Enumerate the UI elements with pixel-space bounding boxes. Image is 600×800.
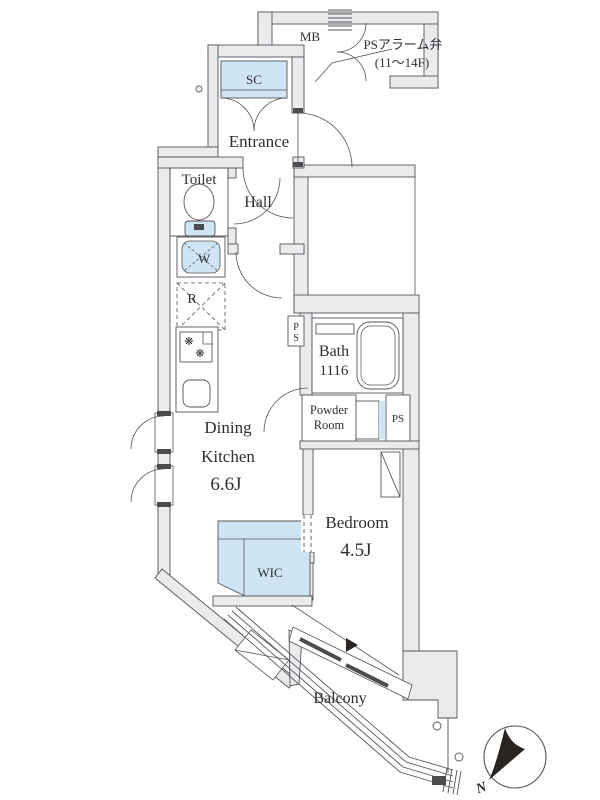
dk-door-arc: [236, 252, 282, 298]
svg-text:❋: ❋: [195, 348, 204, 360]
label-bath: Bath: [319, 343, 349, 360]
toilet-lid-detail: [194, 224, 204, 230]
label-powder-1: Powder: [310, 403, 349, 417]
wall-toilet-hall-2: [228, 228, 236, 244]
vent-circle-top: [196, 86, 202, 92]
wall-hall-dk-1: [228, 244, 238, 254]
label-bedroom-size: 4.5J: [340, 540, 371, 561]
balcony-sliding-door: [289, 627, 412, 699]
label-washer: W: [198, 251, 211, 266]
label-mb: MB: [300, 29, 321, 44]
wall-right: [403, 313, 419, 651]
bathtub-inner: [361, 326, 395, 385]
wall-hall-dk-2: [280, 244, 304, 254]
label-bath-size: 1116: [320, 363, 349, 379]
vent-circle-right-2: [455, 753, 463, 761]
wall-wic-bottom: [213, 596, 312, 606]
wall-void-left: [294, 165, 308, 313]
compass: N: [473, 726, 546, 797]
label-balcony: Balcony: [313, 690, 366, 707]
wall-left-step: [158, 147, 218, 157]
label-alarm-floors: (11〜14F): [375, 55, 429, 70]
svg-text:❋: ❋: [184, 336, 193, 348]
wall-left-upper: [208, 45, 218, 147]
washbasin: [356, 401, 379, 439]
wall-void-bottom: [294, 295, 419, 313]
window-1: [131, 411, 173, 454]
wall-hall-top-left: [158, 157, 243, 168]
door-direction-marker: [346, 638, 358, 652]
bedroom-sliding-doorway: [301, 515, 315, 552]
label-ps-right: PS: [392, 413, 404, 425]
kitchen-counter: [176, 327, 218, 412]
label-dining: Dining: [204, 418, 252, 437]
label-wic: WIC: [257, 565, 282, 580]
entrance-door-jamb-top: [293, 108, 303, 113]
outside-void: [308, 177, 415, 295]
sc-door-arc-right: [254, 98, 287, 131]
floor-plan: ❋❋: [0, 0, 600, 800]
label-hall: Hall: [244, 194, 272, 211]
wall-mb-bottom: [390, 76, 438, 88]
wall-toilet-hall-1: [228, 168, 236, 178]
wall-entrance-right: [292, 57, 304, 113]
compass-north-label: N: [473, 779, 489, 797]
sc-door-arc-left: [221, 98, 254, 131]
bedroom-chute: [381, 452, 400, 497]
label-sc: SC: [246, 72, 262, 87]
kitchen-sink: [183, 380, 210, 407]
window-2: [131, 464, 173, 507]
label-entrance: Entrance: [229, 132, 289, 151]
label-bedroom: Bedroom: [325, 513, 388, 532]
refrigerator-space: [177, 283, 225, 330]
label-dk-size: 6.6J: [210, 474, 241, 495]
wall-bedroom-top: [300, 441, 419, 449]
bath-counter: [316, 324, 354, 334]
walk-in-closet: [218, 521, 310, 596]
wall-void-top: [294, 165, 415, 177]
vent-circle-right-1: [433, 722, 441, 730]
toilet-fixture: [184, 184, 215, 236]
wall-sc-top: [208, 45, 304, 57]
label-powder-2: Room: [314, 418, 345, 432]
washbasin-counter-strip: [379, 401, 385, 439]
railing-detail-block: [432, 776, 446, 785]
floor-plan-canvas: ❋❋: [0, 0, 600, 800]
label-kitchen: Kitchen: [201, 447, 255, 466]
label-toilet: Toilet: [182, 172, 218, 188]
label-ps-left-s: S: [293, 333, 299, 344]
mb-door-arc-top: [337, 23, 366, 52]
label-alarm-valve: PSアラーム弁: [363, 37, 442, 52]
label-fridge: R: [187, 292, 197, 307]
label-ps-left-p: P: [293, 322, 299, 333]
wall-left-1: [158, 157, 170, 415]
wall-left-3: [158, 503, 170, 575]
unit-entrance-door-arc: [298, 113, 352, 167]
